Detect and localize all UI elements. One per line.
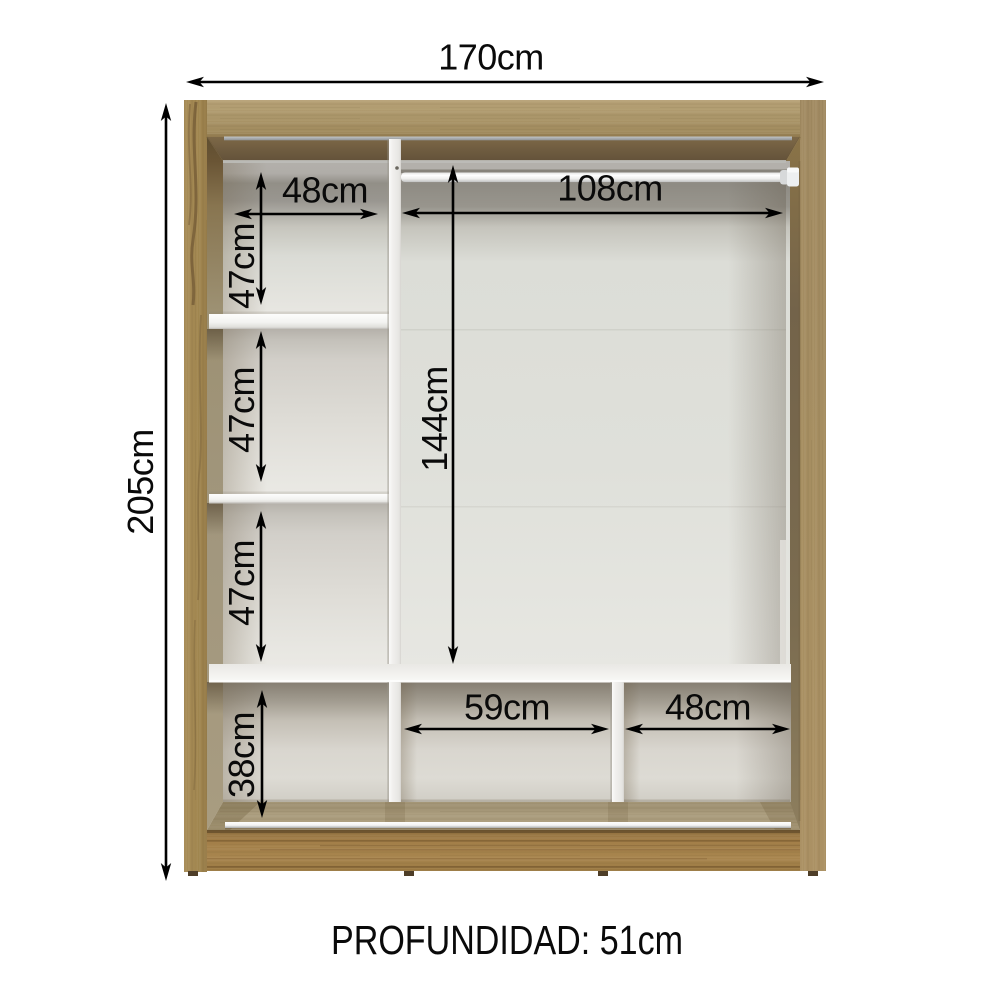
svg-text:48cm: 48cm	[282, 169, 368, 210]
svg-text:144cm: 144cm	[414, 366, 455, 472]
svg-text:108cm: 108cm	[557, 167, 663, 208]
svg-text:205cm: 205cm	[120, 429, 161, 535]
svg-text:47cm: 47cm	[221, 223, 262, 309]
svg-text:38cm: 38cm	[221, 712, 262, 798]
svg-text:59cm: 59cm	[464, 686, 550, 727]
svg-text:170cm: 170cm	[438, 36, 544, 77]
svg-text:48cm: 48cm	[665, 686, 751, 727]
svg-text:47cm: 47cm	[221, 367, 262, 453]
svg-text:47cm: 47cm	[221, 540, 262, 626]
svg-text:PROFUNDIDAD: 51cm: PROFUNDIDAD: 51cm	[331, 917, 683, 963]
